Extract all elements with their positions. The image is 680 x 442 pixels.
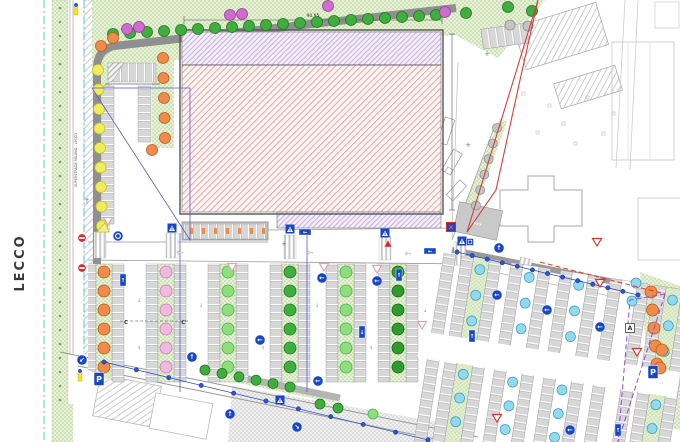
sign-ped [276, 396, 285, 405]
arrow-glyph: ↑ [121, 277, 126, 284]
arrow-glyph: ↑ [189, 353, 194, 361]
area [214, 228, 217, 234]
tree-green [234, 372, 244, 382]
arrow-glyph: ← [315, 377, 321, 385]
parking-letter: P [96, 375, 102, 384]
aisle-arrow: ↓ [315, 303, 319, 309]
green-sw-patch [58, 404, 73, 442]
dimension-value: 90.95 [307, 13, 320, 19]
arrow-glyph: ↑ [616, 427, 621, 434]
sign-ow: ← [299, 229, 311, 236]
yield-sign-icon [418, 322, 427, 330]
street-light-icon [102, 360, 106, 364]
tree-dk-green [392, 361, 404, 373]
tree-green [503, 2, 514, 13]
sign-ns: × [447, 223, 456, 232]
street-name: SUPERSTRADA MILANO - LECCO [74, 133, 78, 187]
tree-magenta [440, 7, 451, 18]
tree-green [251, 375, 261, 385]
section-marker: C [124, 320, 128, 326]
tree-green [284, 285, 296, 297]
site-plan: ×←←↑↑↓↑↑↙↑←←←←↑←←←↑↘←PPALECCOSUPERSTRADA… [0, 0, 680, 442]
section-marker: C' [181, 320, 187, 326]
median-shrubs [59, 21, 62, 24]
tree-lt-green [222, 323, 234, 335]
group [84, 264, 418, 382]
median-shrubs [59, 189, 62, 192]
median-shrubs [59, 343, 62, 346]
stall-column [236, 264, 248, 382]
sign-ca: ↑ [187, 352, 197, 362]
tree-orange [98, 266, 110, 278]
tree-magenta [225, 10, 236, 21]
street-light-icon [530, 268, 534, 272]
road-arrow: ← [307, 248, 314, 257]
median-shrubs [59, 245, 62, 248]
sign-ne [78, 234, 86, 242]
arrow-glyph: ↘ [294, 423, 299, 431]
tree-green [268, 379, 278, 389]
tree-green [363, 14, 374, 25]
signal-head [78, 369, 82, 373]
arrow-glyph: ↑ [397, 272, 402, 279]
area [226, 228, 229, 234]
tree-green [414, 11, 425, 22]
tree-existing [505, 20, 515, 30]
aisle-arrow: ↓ [137, 298, 141, 304]
stall-column [138, 86, 151, 142]
stall-column [326, 264, 338, 382]
median-shrubs [59, 175, 62, 178]
tree-pink [160, 342, 172, 354]
aisle-arrow: ↑ [369, 346, 373, 352]
existing-building [655, 2, 679, 28]
area [238, 228, 241, 234]
street-light-icon [500, 261, 504, 265]
sign-rb [113, 231, 123, 241]
street-light-icon [361, 422, 365, 426]
arrow-glyph: ← [374, 277, 380, 285]
sign-ca: ← [313, 376, 323, 386]
tree-magenta [122, 24, 133, 35]
tree-lt-green [222, 285, 234, 297]
arrow-glyph: ↓ [360, 329, 365, 336]
arrow-glyph: ↑ [227, 410, 232, 418]
street-light-icon [426, 438, 430, 442]
layer-parking-mid [84, 264, 418, 382]
median-shrubs [59, 259, 62, 262]
existing-tree-mark [548, 104, 551, 107]
sign-ow: ← [424, 248, 436, 255]
stall-column [406, 264, 418, 382]
tree-green [397, 12, 408, 23]
existing-building [612, 42, 674, 160]
tree-orange [98, 304, 110, 316]
aisle-arrow: ↑ [137, 346, 141, 352]
median-shrubs [59, 161, 62, 164]
tree-green [284, 323, 296, 335]
sign-owv: ↑ [469, 330, 475, 342]
tree-orange [656, 344, 668, 356]
tree-green [284, 304, 296, 316]
arrow-glyph: ← [597, 323, 603, 331]
tree-lt-green [368, 409, 378, 419]
sign-P: P [94, 373, 104, 386]
stall-column [146, 264, 158, 382]
sign-ab: A [626, 324, 635, 333]
sign-owv: ↑ [615, 424, 621, 436]
tree-yellow [96, 182, 107, 193]
lecco-label: LECCO [13, 234, 28, 291]
tree-dk-green [392, 323, 404, 335]
area [262, 228, 265, 234]
arrow-glyph: ← [303, 230, 308, 236]
sign-ca: ↘ [292, 422, 302, 432]
tree-green [261, 20, 272, 31]
tree-yellow [94, 123, 105, 134]
stall-column [298, 264, 310, 382]
median-shrubs [59, 315, 62, 318]
sign-yd [593, 239, 602, 247]
aisle-arrow: ↓ [423, 308, 427, 314]
tree-yellow [96, 201, 107, 212]
sign-ca: ← [595, 322, 605, 332]
arrow-glyph: ← [319, 274, 325, 282]
tree-orange [108, 33, 119, 44]
road-edge [88, 260, 470, 264]
sign-ped [286, 225, 295, 234]
sign-ne [78, 264, 86, 272]
street-light-icon [296, 407, 300, 411]
tree-orange [647, 304, 659, 316]
area-letter: A [628, 325, 633, 332]
tree-green [193, 24, 204, 35]
median-shrubs [59, 63, 62, 66]
sign-ped [381, 229, 390, 238]
site-plan-svg: ×←←↑↑↓↑↑↙↑←←←←↑←←←↑↘←PPALECCOSUPERSTRADA… [0, 0, 680, 442]
existing-tree-mark [536, 131, 539, 134]
existing-tree-mark [612, 112, 615, 115]
street-light-icon [591, 282, 595, 286]
tree-green [380, 13, 391, 24]
existing-building-cross [500, 176, 582, 242]
sign-owv: ↓ [359, 326, 365, 338]
tree-orange [98, 285, 110, 297]
tree-lt-green [340, 304, 352, 316]
survey-marker: + [484, 50, 490, 58]
tree-orange [159, 93, 170, 104]
tree-magenta [237, 9, 248, 20]
tree-cyan [627, 296, 637, 306]
existing-tree-mark [574, 142, 577, 145]
area [250, 228, 253, 234]
sign-ca: ← [542, 305, 552, 315]
tree-green [295, 18, 306, 29]
tree-orange [158, 73, 169, 84]
median-shrubs [59, 49, 62, 52]
sign-P: P [648, 366, 658, 379]
tree-green [461, 8, 472, 19]
tree-pink [160, 323, 172, 335]
median-shrubs [59, 105, 62, 108]
existing-tree-mark [602, 132, 605, 135]
sign-ped [168, 224, 177, 233]
tree-green [200, 365, 210, 375]
tree-orange [645, 286, 657, 298]
street-light-icon [485, 257, 489, 261]
tree-green [285, 382, 295, 392]
signal-head [74, 3, 78, 7]
building-main-hall [182, 65, 441, 212]
no-stop-cross: × [448, 224, 454, 232]
truck-outline [446, 180, 466, 201]
tree-green [176, 25, 187, 36]
median-shrubs [59, 77, 62, 80]
tree-green [329, 16, 340, 27]
no-entry-bar [79, 237, 84, 239]
tree-green [346, 15, 357, 26]
street-light-icon [636, 293, 640, 297]
aisle-arrow: ↑ [261, 346, 265, 352]
tree-orange [147, 145, 158, 156]
median-shrubs [59, 329, 62, 332]
sign-owv: ↑ [396, 269, 402, 281]
existing-building [638, 198, 680, 260]
median-shrubs [59, 7, 62, 10]
street-light-icon [545, 271, 549, 275]
layer-west-road [40, 0, 96, 442]
median-shrubs [59, 287, 62, 290]
existing-tree-mark [562, 122, 565, 125]
tree-orange [98, 323, 110, 335]
median-shrubs [59, 203, 62, 206]
tree-yellow [95, 162, 106, 173]
median-shrubs [59, 371, 62, 374]
tree-orange [159, 113, 170, 124]
direction-arrow: ↑ [84, 197, 91, 206]
street-light-icon [199, 383, 203, 387]
tree-green [284, 361, 296, 373]
area [202, 228, 205, 234]
sign-pole [74, 3, 78, 15]
street-light-icon [167, 375, 171, 379]
tree-lt-green [222, 304, 234, 316]
sign-ca: ← [317, 273, 327, 283]
sign-yd [418, 322, 427, 330]
median-shrubs [59, 231, 62, 234]
street-light-icon [621, 289, 625, 293]
tree-lt-green [340, 266, 352, 278]
survey-marker: + [465, 141, 471, 149]
sign-ped [458, 237, 467, 246]
tree-lt-green [340, 285, 352, 297]
tree-pink [160, 285, 172, 297]
tree-yellow [93, 84, 104, 95]
sign-ca: ← [255, 335, 265, 345]
yield-sign-icon [593, 239, 602, 247]
median-shrubs [59, 91, 62, 94]
tree-green [278, 19, 289, 30]
tree-lt-green [340, 342, 352, 354]
tree-orange [158, 53, 169, 64]
sign-ca: ← [565, 425, 575, 435]
line [630, 0, 638, 170]
street-light-icon [264, 399, 268, 403]
arrow-glyph: ← [494, 291, 500, 299]
street-light-icon [231, 391, 235, 395]
stall-column [208, 264, 220, 382]
tree-magenta [134, 22, 145, 33]
arrow-glyph: ↑ [496, 244, 501, 252]
tree-green [284, 266, 296, 278]
aisle-arrow: ↓ [199, 303, 203, 309]
tree-dk-green [392, 342, 404, 354]
tree-orange [96, 41, 107, 52]
tree-magenta [323, 1, 334, 12]
area [190, 228, 193, 234]
median-shrubs [59, 399, 62, 402]
existing-building [149, 393, 213, 439]
sign-ca: ↑ [494, 243, 504, 253]
median-shrubs [59, 301, 62, 304]
tree-orange [160, 133, 171, 144]
arrow-glyph: ← [544, 306, 550, 314]
street-light-icon [455, 250, 459, 254]
road-arrow: ← [405, 249, 412, 258]
crosswalk [379, 236, 391, 260]
tree-green [227, 22, 238, 33]
no-entry-bar [79, 267, 84, 269]
west-road-median [52, 0, 68, 442]
building-canopy-north [182, 32, 441, 65]
sign-pole [78, 369, 82, 381]
info-sign-icon [467, 239, 474, 246]
sign-owv: ↑ [120, 274, 126, 286]
stall-column [354, 264, 366, 382]
street-light-icon [575, 278, 579, 282]
street-light-icon [470, 253, 474, 257]
crosswalk [94, 232, 106, 258]
tree-green [333, 403, 343, 413]
sign-ca: ↑ [225, 409, 235, 419]
tree-lt-green [340, 323, 352, 335]
existing-tree-mark [522, 92, 525, 95]
tree-pink [160, 266, 172, 278]
median-shrubs [59, 217, 62, 220]
arrow-glyph: ↙ [79, 356, 84, 364]
loading-stalls [184, 224, 266, 239]
median-shrubs [59, 35, 62, 38]
tree-dk-green [392, 285, 404, 297]
tree-orange [98, 342, 110, 354]
tree-green [210, 23, 221, 34]
median-shrubs [59, 147, 62, 150]
street-light-icon [515, 264, 519, 268]
street-light-icon [560, 275, 564, 279]
arrow-glyph: ← [257, 336, 263, 344]
arrow-glyph: ← [428, 249, 433, 255]
tree-dk-green [392, 304, 404, 316]
median-shrubs [59, 385, 62, 388]
tree-green [244, 21, 255, 32]
tree-pink [160, 304, 172, 316]
tree-green [217, 368, 227, 378]
street-light-icon [606, 286, 610, 290]
tree-pink [160, 361, 172, 373]
arrow-glyph: ← [567, 426, 573, 434]
median-shrubs [59, 357, 62, 360]
tree-yellow [95, 143, 106, 154]
sign-ca: ← [492, 290, 502, 300]
stall-column [270, 264, 282, 382]
tree-green [284, 342, 296, 354]
sign-bsq [467, 239, 474, 246]
tree-yellow [93, 65, 104, 76]
street-light-icon [134, 368, 138, 372]
sign-ca: ← [372, 276, 382, 286]
median-shrubs [59, 119, 62, 122]
street-light-icon [393, 430, 397, 434]
tree-green [315, 399, 325, 409]
parking-letter: P [650, 368, 656, 377]
survey-marker: + [281, 240, 287, 248]
street-light-icon [329, 414, 333, 418]
sign-ca: ↙ [77, 355, 87, 365]
median-shrubs [59, 273, 62, 276]
tree-lt-green [340, 361, 352, 373]
tree-lt-green [222, 342, 234, 354]
road-arrow: ← [177, 248, 184, 257]
tree-green [159, 26, 170, 37]
arrow-glyph: ↑ [470, 333, 475, 340]
roundabout-icon [113, 231, 123, 241]
median-shrubs [59, 133, 62, 136]
